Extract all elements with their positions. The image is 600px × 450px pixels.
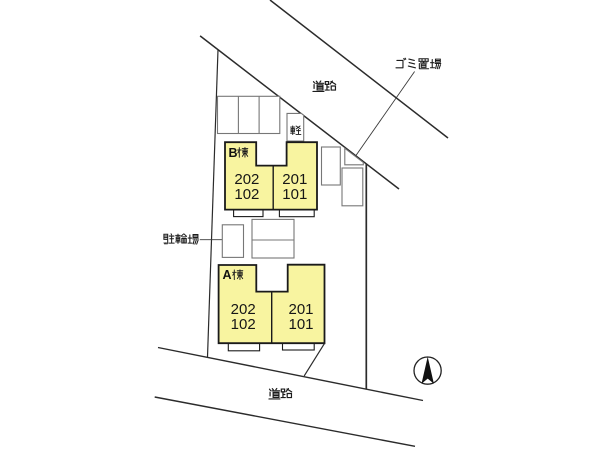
svg-text:102: 102 xyxy=(231,316,256,333)
svg-text:101: 101 xyxy=(288,316,313,333)
svg-text:B: B xyxy=(228,146,237,160)
svg-text:A: A xyxy=(222,268,231,282)
svg-text:101: 101 xyxy=(282,186,307,203)
svg-text:102: 102 xyxy=(234,186,259,203)
